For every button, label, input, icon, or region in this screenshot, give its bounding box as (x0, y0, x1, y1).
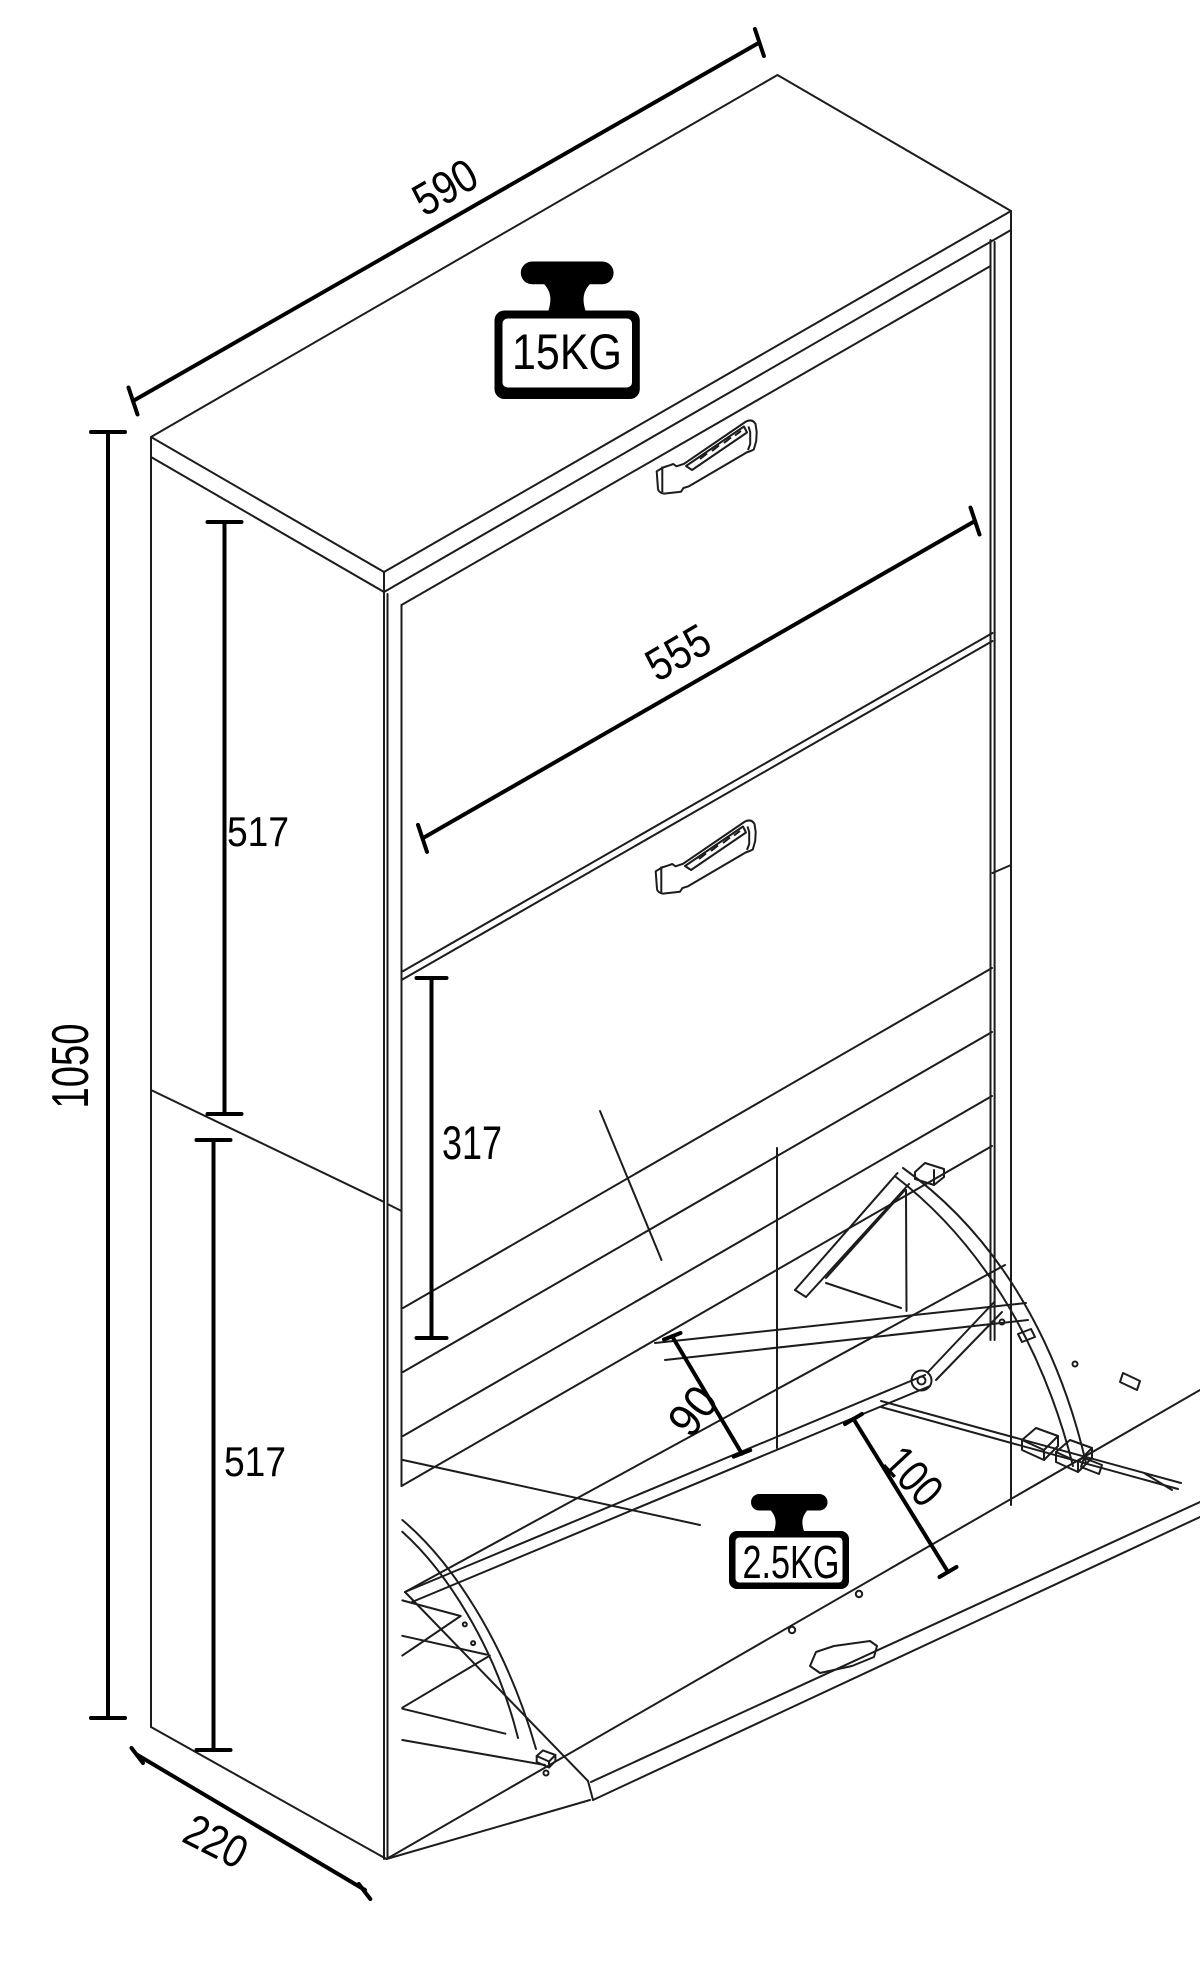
svg-text:2.5KG: 2.5KG (743, 1536, 840, 1588)
svg-text:317: 317 (442, 1116, 502, 1169)
svg-text:517: 517 (227, 808, 289, 855)
svg-text:15KG: 15KG (512, 324, 622, 380)
svg-text:517: 517 (224, 1438, 286, 1485)
svg-text:1050: 1050 (42, 1024, 100, 1109)
